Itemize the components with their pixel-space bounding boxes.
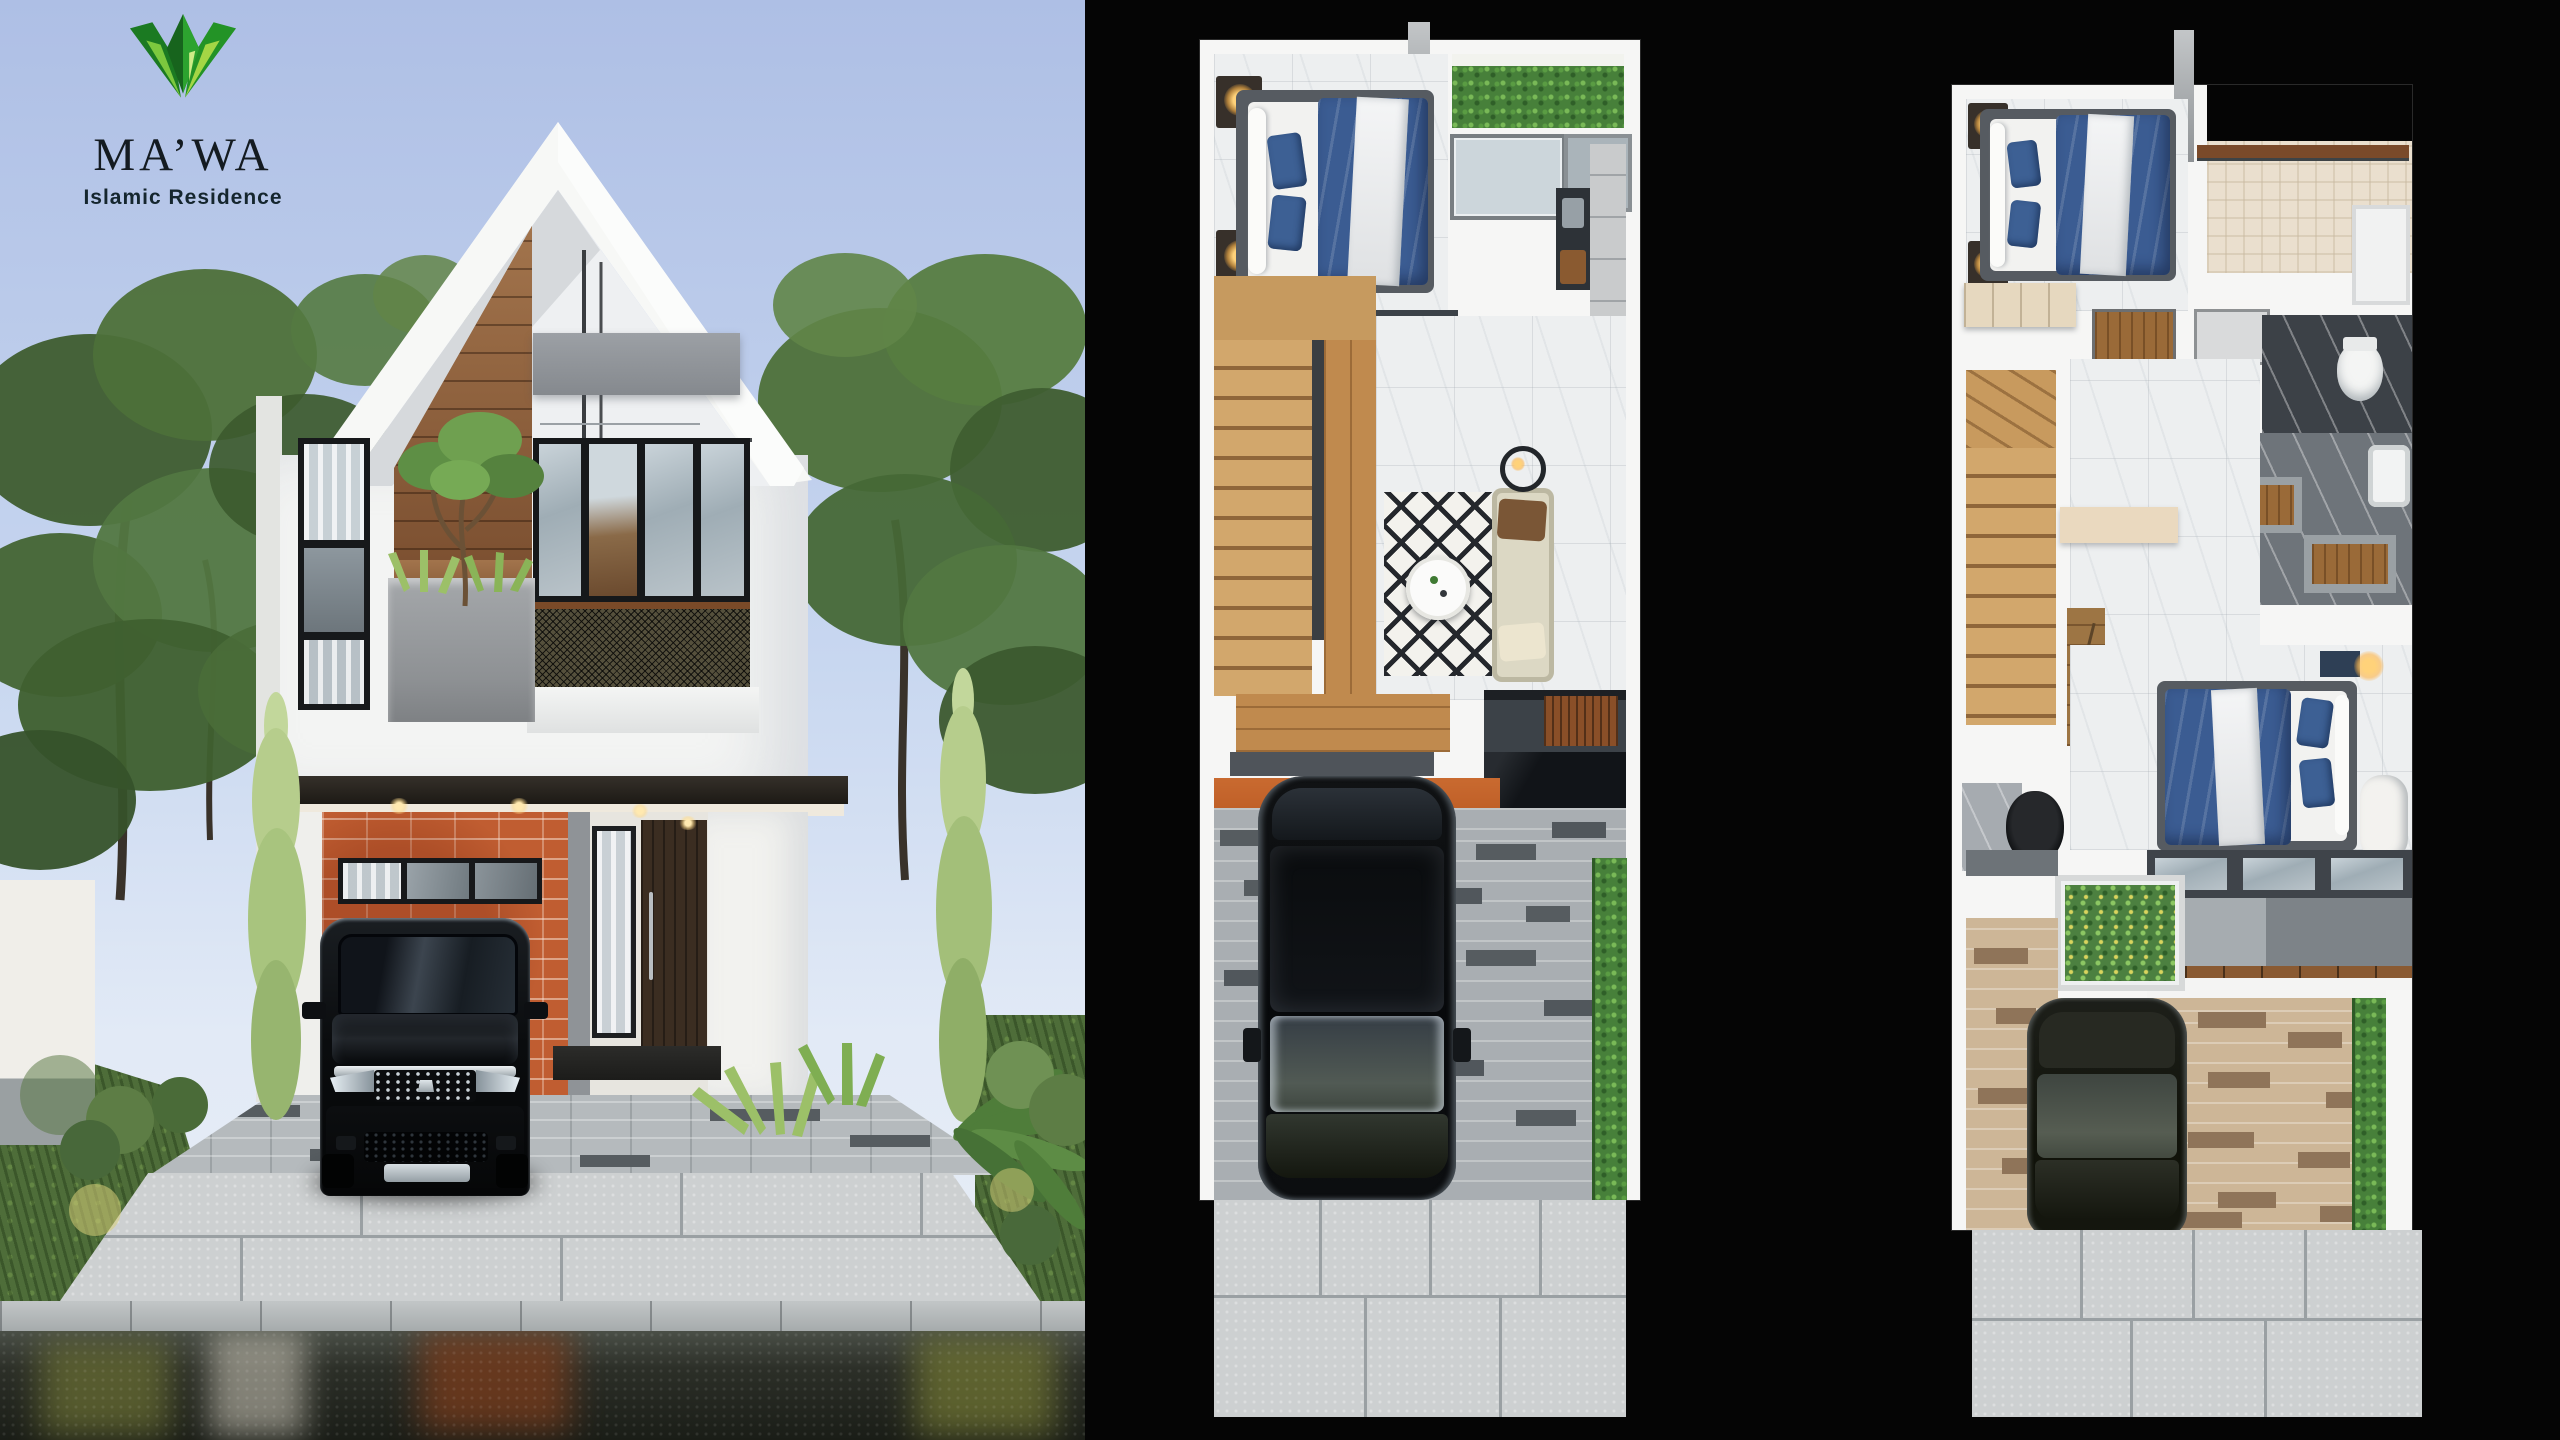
bed-throw-blanket <box>2080 114 2134 276</box>
console-wood-door <box>1544 696 1618 746</box>
car-top-mirror <box>1243 1028 1261 1062</box>
plan2-car-top <box>2027 998 2187 1238</box>
body-pillow <box>1990 123 2005 267</box>
lamp-bulb <box>1511 457 1525 471</box>
plan2-bed1 <box>1980 109 2176 281</box>
plan2-balcony-window-band <box>2147 850 2412 898</box>
car-top-mirror <box>1453 1028 1471 1062</box>
floor-plan-level-1 <box>1200 40 1640 1417</box>
balcony-pane <box>2243 858 2315 890</box>
agave-cluster <box>692 1043 885 1137</box>
plan1-garage-plant-strip <box>1592 858 1627 1200</box>
sofa-pillow-brown <box>1497 498 1548 541</box>
plan1-driveway-slabs <box>1214 1200 1626 1417</box>
planter-plants <box>2065 885 2175 981</box>
plan2-balcony-rail <box>2147 966 2412 978</box>
car-rear-glass <box>1272 788 1442 840</box>
table-decor <box>1430 576 1438 584</box>
car-roof <box>1270 846 1444 1012</box>
sofa-pillow-white <box>1498 622 1547 662</box>
cypress-tree-left <box>248 692 306 1120</box>
plan2-bench <box>2060 507 2178 543</box>
plan2-vanity-white <box>2352 205 2410 305</box>
plan2-driveway-slabs <box>1972 1230 2422 1417</box>
bed-throw-blanket <box>1347 97 1409 286</box>
plan1-light-cove <box>1452 54 1624 66</box>
plan1-stair-rail <box>1312 340 1324 640</box>
body-pillow <box>1248 108 1266 274</box>
exterior-front-render: MA’WA Islamic Residence <box>0 0 1085 1440</box>
brand-name: MA’WA <box>58 128 308 182</box>
plan1-car-top <box>1258 776 1456 1200</box>
plan2-ledge-gray <box>1966 850 2058 876</box>
pillow <box>2007 200 2042 249</box>
vanity-wood-door <box>2312 544 2388 584</box>
garden-light-glow <box>990 1168 1034 1212</box>
brand-logo: MA’WA Islamic Residence <box>58 12 308 210</box>
plan2-stairs <box>1966 448 2056 725</box>
plan2-bath2-sink <box>2368 445 2410 507</box>
marketing-image: MA’WA Islamic Residence <box>0 0 2560 1440</box>
car-top-roof <box>2039 1012 2175 1068</box>
plan2-balcony-floor <box>2147 898 2412 966</box>
plan2-planter-box <box>2055 875 2185 991</box>
plan1-sofa <box>1492 488 1554 682</box>
plan2-roof-notch <box>2207 85 2412 141</box>
plan2-dresser <box>1964 283 2076 327</box>
toilet <box>2337 343 2383 401</box>
toilet-tank <box>2343 337 2377 351</box>
plan1-stairs <box>1214 340 1312 696</box>
table-lamp <box>2354 651 2384 681</box>
plan1-stair-landing <box>1214 276 1376 343</box>
balcony-pane <box>2331 858 2403 890</box>
pillow <box>2006 139 2041 188</box>
cutting-board <box>1560 250 1586 284</box>
car-top-windshield <box>2037 1074 2177 1158</box>
pillow <box>1266 132 1307 190</box>
table-decor <box>1440 590 1447 597</box>
plan1-counter-dark <box>1556 188 1590 290</box>
cypress-tree-right <box>936 668 992 1122</box>
plan1-bed <box>1236 90 1434 293</box>
plan2-bath2-counter <box>2304 535 2396 593</box>
plan1-entry-wood-floor <box>1236 694 1450 752</box>
plan1-floor-lamp <box>1500 446 1546 492</box>
plan2-bed2 <box>2157 681 2357 851</box>
leaf-crown-icon <box>121 12 245 114</box>
plan1-shower-glass <box>1450 134 1566 220</box>
plan2-chaise <box>2360 775 2408 861</box>
floor-plan-level-2 <box>1952 85 2430 1417</box>
garden-light-glow <box>69 1184 121 1236</box>
plan2-parapet <box>2147 978 2412 998</box>
plan2-door-white <box>2194 309 2270 365</box>
shrubs-left <box>20 1055 208 1180</box>
car-top-windshield <box>1270 1016 1444 1112</box>
kitchen-sink <box>1562 198 1584 228</box>
plan1-step-band <box>1230 752 1434 776</box>
plan2-garage-plant-strip <box>2352 998 2389 1230</box>
body-pillow <box>2335 695 2349 835</box>
car-top-hood <box>2035 1160 2179 1220</box>
plan1-hall-wood-floor <box>1324 340 1376 696</box>
foreground-plants <box>0 300 1085 1440</box>
plan1-courtyard-plants <box>1452 66 1624 128</box>
brand-tagline: Islamic Residence <box>58 186 308 210</box>
bed-throw-blanket <box>2211 688 2265 846</box>
plan2-garage-wall-right <box>2386 990 2412 1230</box>
pillow <box>1267 194 1306 251</box>
plan2-stair-winder <box>1966 370 2056 448</box>
plan1-tv-console <box>1484 690 1626 752</box>
plan2-towel-rail <box>2197 145 2409 158</box>
car-top-hood <box>1266 1114 1448 1178</box>
pillow <box>2299 757 2336 808</box>
plan2-door-wood <box>2092 309 2176 365</box>
plan1-coffee-table <box>1406 556 1470 620</box>
pillow <box>2296 697 2334 749</box>
